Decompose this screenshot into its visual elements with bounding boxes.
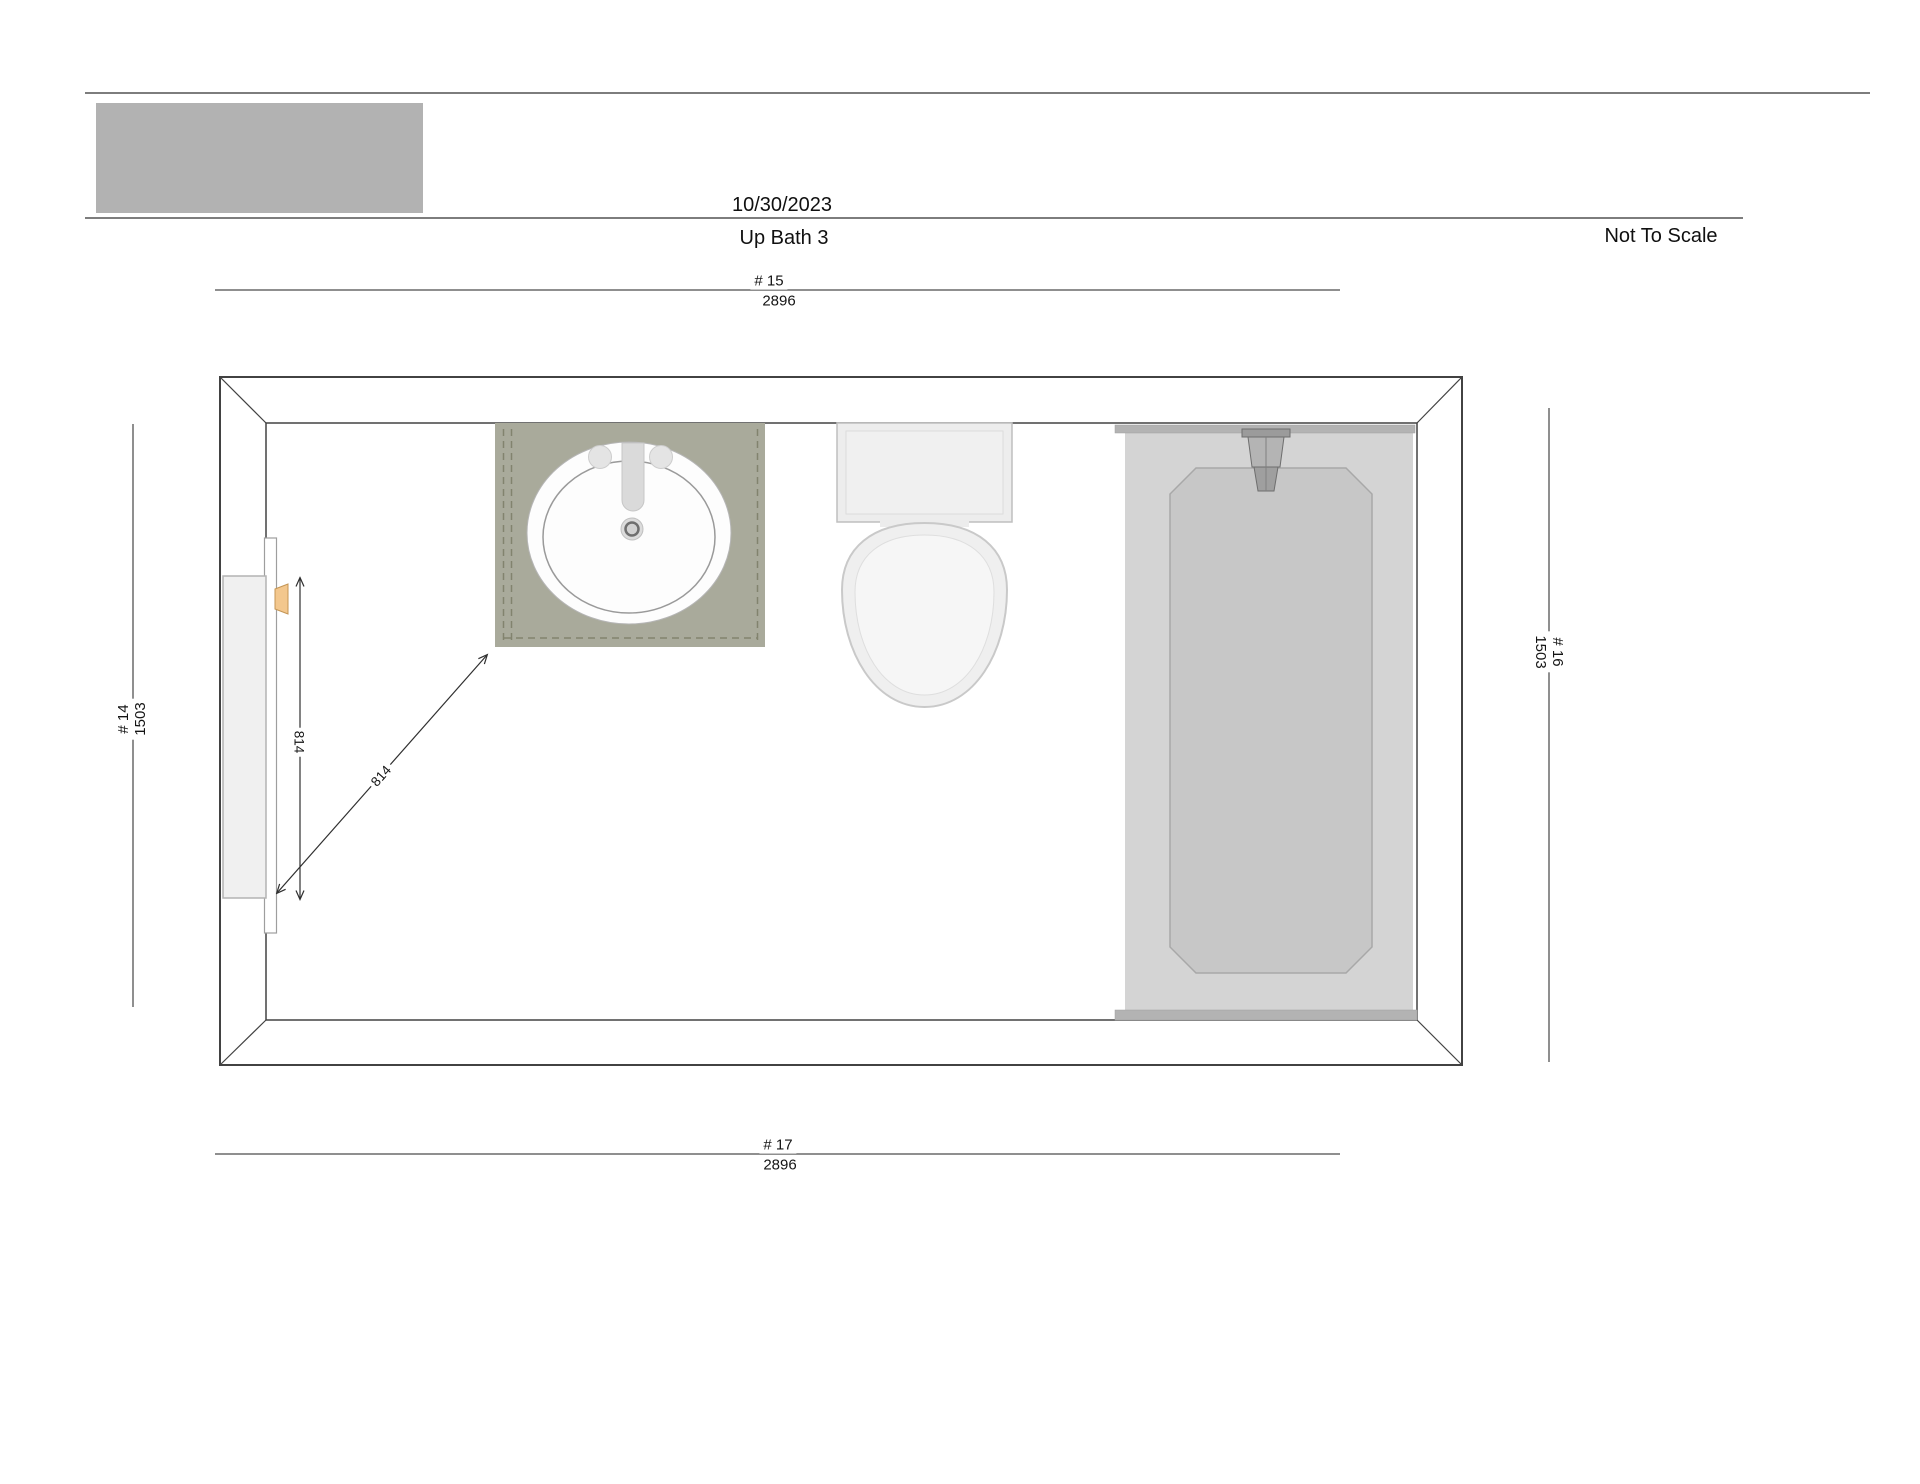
dim-left-id: # 14 — [115, 702, 132, 735]
door-slab — [223, 576, 266, 898]
tub-basin — [1170, 468, 1372, 973]
dim-right-value: 1503 — [1532, 635, 1549, 668]
dim-top-id: # 15 — [750, 273, 787, 290]
sink-handle-left — [589, 446, 612, 469]
bathtub-shower — [1115, 425, 1417, 1020]
toilet-tank-lid — [846, 431, 1003, 514]
plan-date: 10/30/2023 — [732, 194, 832, 216]
dim-bottom-value: 2896 — [759, 1157, 800, 1174]
sink-faucet — [622, 443, 644, 511]
dim-left-value: 1503 — [132, 702, 149, 735]
sink-drain-ring — [626, 523, 639, 536]
dim-left-label: # 14 1503 — [115, 698, 149, 739]
dim-top-value: 2896 — [758, 293, 799, 310]
dim-right-id: # 16 — [1549, 635, 1566, 668]
dim-right-label: # 16 1503 — [1532, 631, 1566, 672]
door-width-dim-label: 814 — [292, 728, 307, 757]
tub-rim-bottom — [1115, 1010, 1417, 1020]
plan-title: Up Bath 3 — [740, 227, 829, 249]
dim-bottom-id: # 17 — [759, 1137, 796, 1154]
toilet — [837, 423, 1012, 707]
door-handle — [275, 584, 288, 614]
logo-placeholder — [96, 103, 423, 213]
vanity-sink — [495, 423, 765, 647]
sink-handle-right — [650, 446, 673, 469]
floor-plan-page: 10/30/2023 Up Bath 3 Not To Scale # 15 2… — [0, 0, 1920, 1484]
scale-note: Not To Scale — [1604, 225, 1717, 247]
floor-plan-drawing — [0, 0, 1920, 1484]
